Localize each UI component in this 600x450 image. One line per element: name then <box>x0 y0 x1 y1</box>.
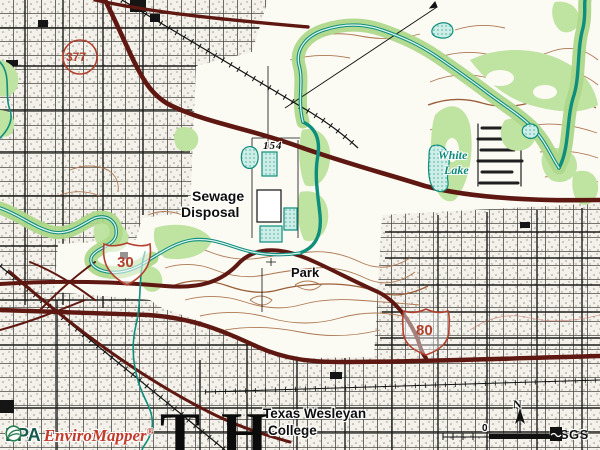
college-label-line2: College <box>268 423 317 438</box>
usgs-credit: USGS <box>550 427 589 442</box>
elevation-label: 154 <box>263 140 283 152</box>
sewage-disposal-label-line2: Disposal <box>181 204 239 220</box>
quad-name-letter-h: H <box>221 404 268 450</box>
topo-map-art <box>0 0 600 450</box>
white-lake-label-line1: White <box>438 148 467 163</box>
epa-flower-icon <box>5 425 22 442</box>
quad-name-letter-t: T <box>160 404 200 450</box>
park-label: Park <box>291 265 319 280</box>
usgs-logo-icon <box>550 427 562 441</box>
epa-enviromapper-logo: EPA EnviroMapper® <box>5 425 153 446</box>
college-label-line1: Texas Wesleyan <box>263 406 366 421</box>
white-lake-label-line2: Lake <box>444 163 469 178</box>
map-canvas[interactable]: 154 Sewage Disposal Park White Lake Texa… <box>0 0 600 450</box>
enviromapper-wordmark: EnviroMapper® <box>44 426 154 446</box>
registered-mark: ® <box>147 426 154 436</box>
interstate-30-shield: 30 <box>117 254 134 271</box>
us-80-shield: 80 <box>416 322 433 339</box>
sewage-disposal-label-line1: Sewage <box>192 188 244 204</box>
scale-zero-label: 0 <box>482 423 488 434</box>
route-377-shield: 377 <box>66 50 86 64</box>
north-label: N <box>513 397 522 412</box>
